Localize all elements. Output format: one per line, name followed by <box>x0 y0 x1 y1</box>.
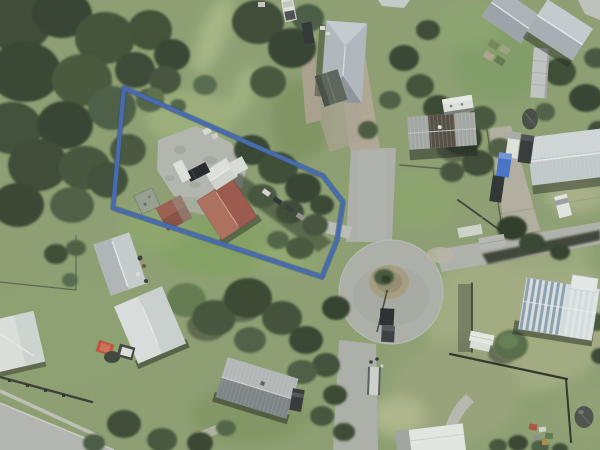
aerial-map-canvas[interactable] <box>0 0 600 450</box>
aerial-photo <box>0 0 600 450</box>
photo-grain <box>0 0 600 450</box>
